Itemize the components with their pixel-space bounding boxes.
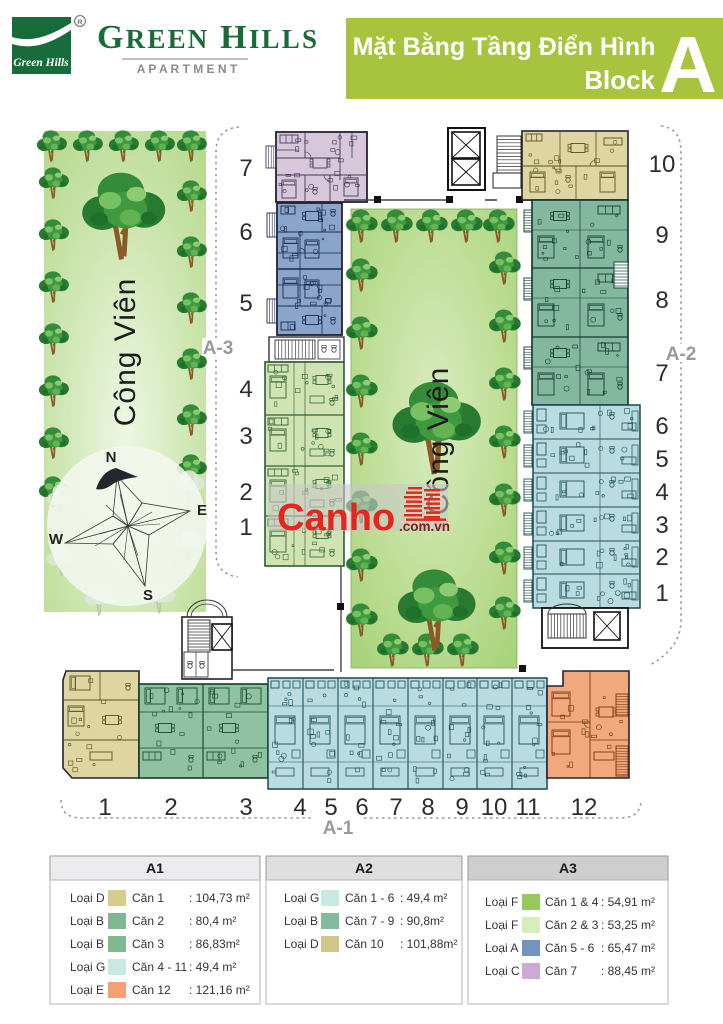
svg-text:Loại F: Loại F: [485, 918, 518, 932]
svg-text:2: 2: [655, 544, 668, 571]
svg-text:A1: A1: [146, 860, 164, 876]
svg-text:Green Hills: Green Hills: [13, 57, 69, 69]
svg-text:Căn 7 - 9: Căn 7 - 9: [345, 914, 395, 928]
svg-text:1: 1: [655, 580, 668, 607]
svg-text:3: 3: [239, 794, 252, 821]
svg-text:5: 5: [239, 290, 252, 317]
svg-text:9: 9: [655, 222, 668, 249]
svg-text:Loại D: Loại D: [70, 891, 105, 905]
svg-text:6: 6: [239, 219, 252, 246]
svg-text:A3: A3: [559, 860, 577, 876]
svg-text:3: 3: [239, 423, 252, 450]
svg-text:Loại E: Loại E: [70, 983, 104, 997]
svg-text:: 49,4 m²: : 49,4 m²: [400, 891, 447, 905]
svg-text:: 121,16 m²: : 121,16 m²: [189, 983, 250, 997]
svg-text:A P A R T M E N T: A P A R T M E N T: [137, 62, 238, 76]
svg-text:9: 9: [455, 794, 468, 821]
svg-text:Block: Block: [584, 65, 655, 95]
svg-text:A-3: A-3: [203, 338, 234, 359]
svg-text:12: 12: [571, 794, 598, 821]
svg-text:Loại B: Loại B: [284, 914, 318, 928]
svg-text:Căn 1 & 4: Căn 1 & 4: [545, 895, 599, 909]
svg-text:10: 10: [481, 794, 508, 821]
svg-text:: 86,83m²: : 86,83m²: [189, 937, 240, 951]
svg-text:Mặt Bằng Tầng Điển Hình: Mặt Bằng Tầng Điển Hình: [353, 31, 656, 61]
svg-text:: 65,47 m²: : 65,47 m²: [601, 941, 655, 955]
svg-text:: 90,8m²: : 90,8m²: [400, 914, 444, 928]
svg-text:2: 2: [164, 794, 177, 821]
svg-text:A: A: [659, 20, 717, 109]
svg-text:11: 11: [516, 794, 541, 821]
svg-text:4: 4: [655, 479, 668, 506]
svg-text:Căn 2 & 3: Căn 2 & 3: [545, 918, 599, 932]
svg-text:: 53,25 m²: : 53,25 m²: [601, 918, 655, 932]
svg-text:Loại G: Loại G: [70, 960, 105, 974]
svg-text:Loại C: Loại C: [485, 964, 520, 978]
svg-text:.com.vn: .com.vn: [399, 519, 450, 534]
svg-text:2: 2: [239, 479, 252, 506]
svg-text:Căn 1: Căn 1: [132, 891, 164, 905]
svg-text:Loại B: Loại B: [70, 914, 104, 928]
svg-text:Căn 4 - 11: Căn 4 - 11: [132, 960, 187, 974]
svg-text:3: 3: [655, 512, 668, 539]
svg-text:Loại F: Loại F: [485, 895, 518, 909]
svg-text:Căn 1 - 6: Căn 1 - 6: [345, 891, 395, 905]
svg-text:Căn 7: Căn 7: [545, 964, 577, 978]
svg-text:8: 8: [421, 794, 434, 821]
svg-text:Căn 10: Căn 10: [345, 937, 384, 951]
svg-text:: 101,88m²: : 101,88m²: [400, 937, 457, 951]
svg-text:E: E: [197, 502, 207, 519]
svg-text:Loại G: Loại G: [284, 891, 319, 905]
svg-text:6: 6: [355, 794, 368, 821]
svg-text:10: 10: [649, 151, 676, 178]
svg-text:1: 1: [98, 794, 111, 821]
svg-text:W: W: [49, 531, 64, 548]
svg-text:7: 7: [239, 155, 252, 182]
svg-text:Loại A: Loại A: [485, 941, 518, 955]
svg-text:N: N: [106, 449, 117, 466]
svg-text:A-2: A-2: [666, 344, 697, 365]
svg-text:5: 5: [655, 446, 668, 473]
svg-text:Loại D: Loại D: [284, 937, 319, 951]
svg-text:: 49,4 m²: : 49,4 m²: [189, 960, 236, 974]
svg-text:7: 7: [389, 794, 402, 821]
svg-text:4: 4: [239, 376, 252, 403]
svg-text:4: 4: [293, 794, 306, 821]
svg-text:S: S: [143, 587, 153, 604]
svg-text:A2: A2: [355, 860, 373, 876]
svg-text:: 54,91 m²: : 54,91 m²: [601, 895, 655, 909]
svg-text:Căn 3: Căn 3: [132, 937, 164, 951]
svg-text:Canho: Canho: [277, 497, 395, 539]
svg-text:Căn 5 - 6: Căn 5 - 6: [545, 941, 595, 955]
svg-text:5: 5: [324, 794, 337, 821]
svg-text:: 80,4 m²: : 80,4 m²: [189, 914, 236, 928]
svg-text:6: 6: [655, 413, 668, 440]
svg-text:Loại B: Loại B: [70, 937, 104, 951]
svg-text:R: R: [77, 18, 83, 27]
svg-text:: 104,73 m²: : 104,73 m²: [189, 891, 250, 905]
svg-text:GREEN HILLS: GREEN HILLS: [97, 19, 319, 56]
svg-text:8: 8: [655, 287, 668, 314]
svg-text:1: 1: [239, 514, 252, 541]
svg-text:Căn 2: Căn 2: [132, 914, 164, 928]
svg-text:A-1: A-1: [323, 818, 354, 839]
svg-text:Căn 12: Căn 12: [132, 983, 171, 997]
svg-text:: 88,45 m²: : 88,45 m²: [601, 964, 655, 978]
svg-text:Công Viên: Công Viên: [109, 278, 142, 427]
